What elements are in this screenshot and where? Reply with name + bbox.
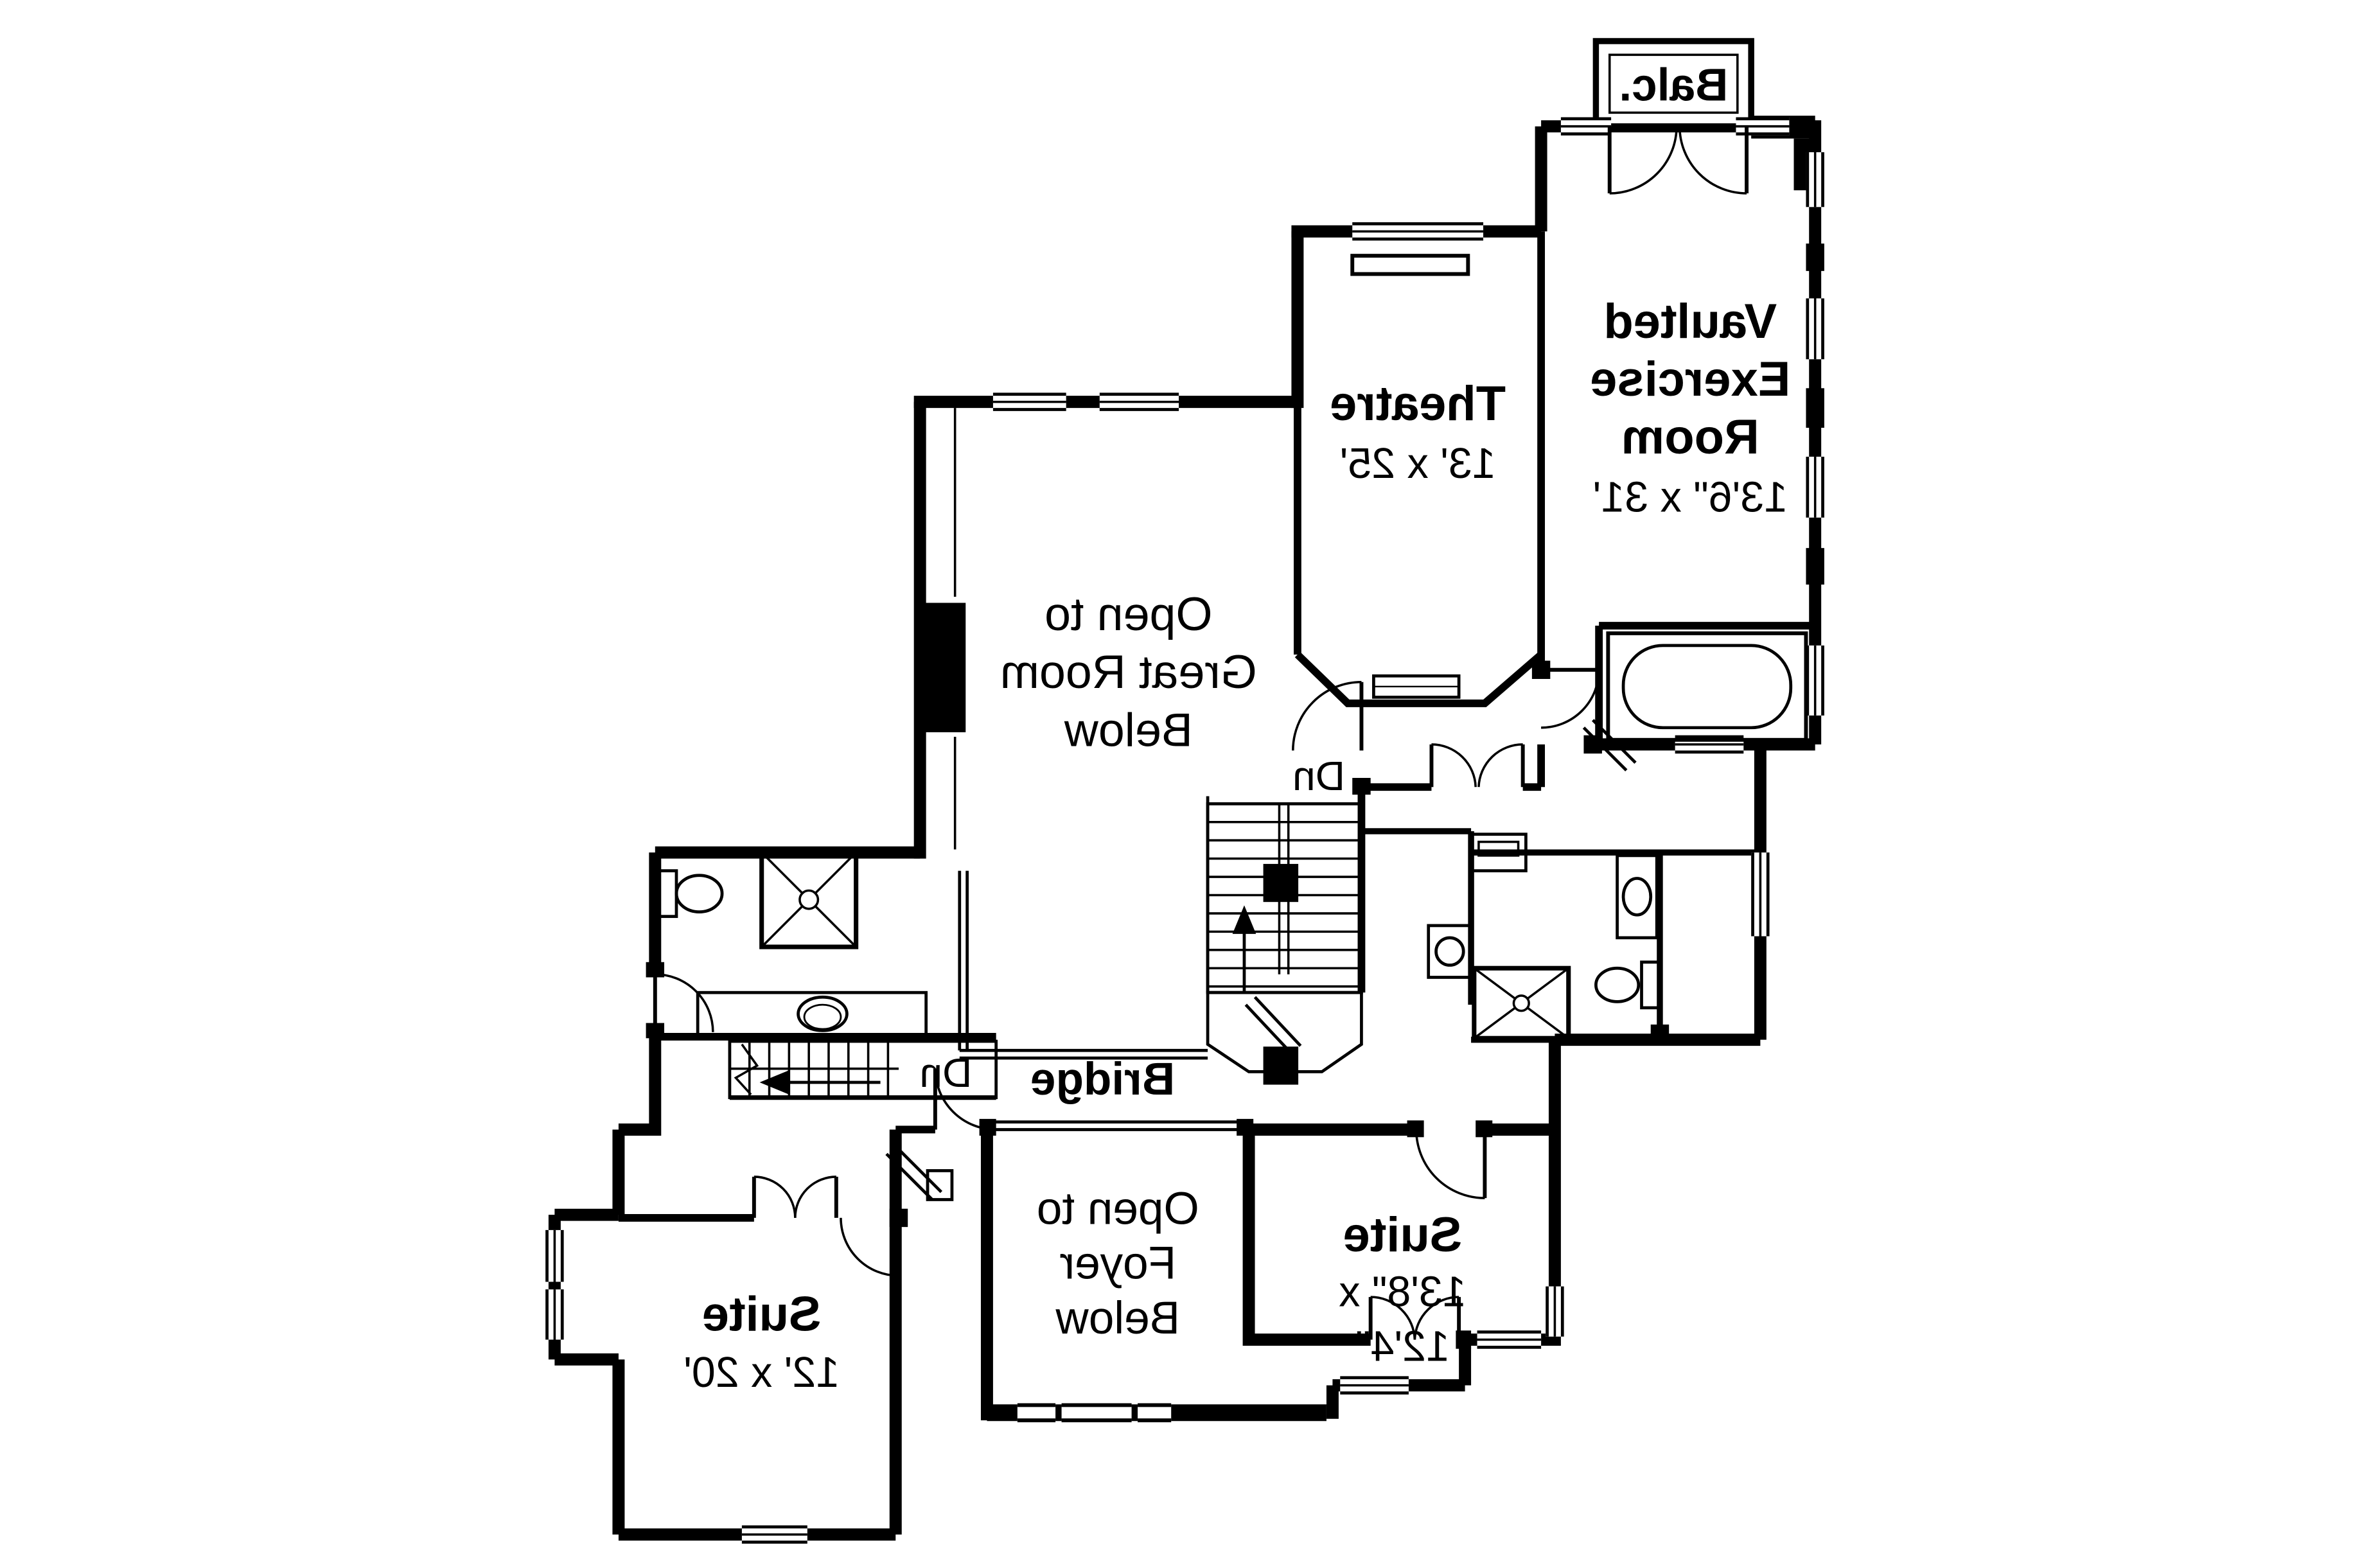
window-icon bbox=[1018, 1402, 1055, 1423]
window-icon bbox=[1340, 1376, 1409, 1394]
label-open-to-great-room-line-2: Below bbox=[1064, 703, 1193, 756]
window-icon bbox=[1736, 117, 1789, 135]
window-icon bbox=[1100, 392, 1179, 410]
window-icon bbox=[1806, 457, 1824, 518]
window-icon bbox=[742, 1526, 807, 1544]
label-open-to-great-room-line-0: Open to bbox=[1044, 587, 1212, 640]
label-suite-2-line-0: Suite bbox=[1343, 1208, 1462, 1262]
label-suite-1-line-0: Suite bbox=[702, 1287, 821, 1341]
newel-post bbox=[1264, 865, 1298, 901]
label-open-to-foyer-line-1: Foyer bbox=[1059, 1238, 1176, 1289]
window-icon bbox=[1138, 1402, 1171, 1423]
label-exercise-room-line-0: Vaulted bbox=[1603, 294, 1777, 349]
window-icon bbox=[1352, 222, 1483, 240]
label-open-to-foyer-line-2: Below bbox=[1055, 1293, 1180, 1344]
window-icon bbox=[1751, 852, 1769, 936]
label-dn-left-stairs-line-0: Dn bbox=[920, 1050, 973, 1096]
label-suite-2-line-2: 12'4" bbox=[1355, 1323, 1450, 1371]
label-theatre-line-0: Theatre bbox=[1330, 376, 1506, 431]
label-exercise-room-line-1: Exercise bbox=[1590, 352, 1790, 407]
label-theatre-line-1: 13' x 25' bbox=[1340, 440, 1496, 488]
window-icon bbox=[545, 1289, 563, 1339]
label-exercise-room-line-3: 13'6" x 31' bbox=[1593, 473, 1788, 521]
floor-plan-page: Balc.VaultedExerciseRoom13'6" x 31'Theat… bbox=[0, 0, 2353, 1568]
window-icon bbox=[993, 392, 1066, 410]
label-open-to-foyer-line-0: Open to bbox=[1037, 1183, 1199, 1234]
newel-post bbox=[1264, 1047, 1298, 1084]
chimney bbox=[920, 603, 965, 732]
window-icon bbox=[1806, 646, 1824, 716]
window-icon bbox=[1546, 1287, 1564, 1337]
window-icon bbox=[1477, 1330, 1542, 1348]
window-icon bbox=[545, 1230, 563, 1282]
label-exercise-room-line-2: Room bbox=[1621, 410, 1759, 464]
window-icon bbox=[1806, 299, 1824, 360]
label-open-to-great-room-line-1: Great Room bbox=[1000, 645, 1257, 698]
label-dn-main-stairs-line-0: Dn bbox=[1292, 753, 1345, 799]
label-suite-2-line-1: 13'8" x bbox=[1339, 1268, 1467, 1316]
label-suite-1-line-1: 12' x 20' bbox=[683, 1349, 840, 1396]
label-bridge-line-0: Bridge bbox=[1030, 1054, 1175, 1105]
window-icon bbox=[1561, 117, 1611, 135]
floor-plan-drawing: Balc.VaultedExerciseRoom13'6" x 31'Theat… bbox=[0, 0, 2353, 1568]
label-balcony-line-0: Balc. bbox=[1619, 60, 1728, 110]
window-icon bbox=[1062, 1402, 1132, 1423]
window-icon bbox=[1806, 152, 1824, 207]
